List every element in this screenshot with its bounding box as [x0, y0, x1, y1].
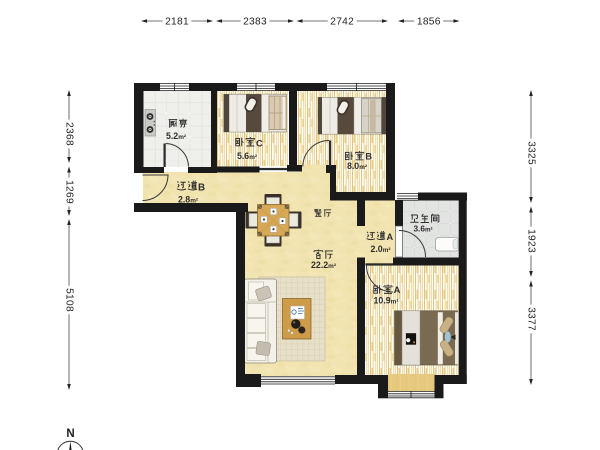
svg-text:C: C — [256, 138, 263, 149]
svg-text:3325: 3325 — [526, 141, 537, 165]
svg-text:1269: 1269 — [64, 180, 75, 204]
svg-text:1923: 1923 — [526, 229, 537, 253]
svg-text:A: A — [387, 232, 394, 242]
svg-text:2368: 2368 — [64, 122, 75, 146]
svg-text:B: B — [365, 151, 372, 162]
svg-text:2742: 2742 — [330, 16, 354, 27]
svg-text:5108: 5108 — [64, 288, 75, 312]
svg-text:2181: 2181 — [165, 16, 189, 27]
svg-text:3377: 3377 — [526, 307, 537, 331]
svg-text:2383: 2383 — [243, 16, 267, 27]
svg-text:1856: 1856 — [417, 16, 441, 27]
svg-text:N: N — [66, 428, 74, 440]
svg-text:B: B — [198, 182, 205, 193]
svg-text:A: A — [394, 284, 401, 295]
